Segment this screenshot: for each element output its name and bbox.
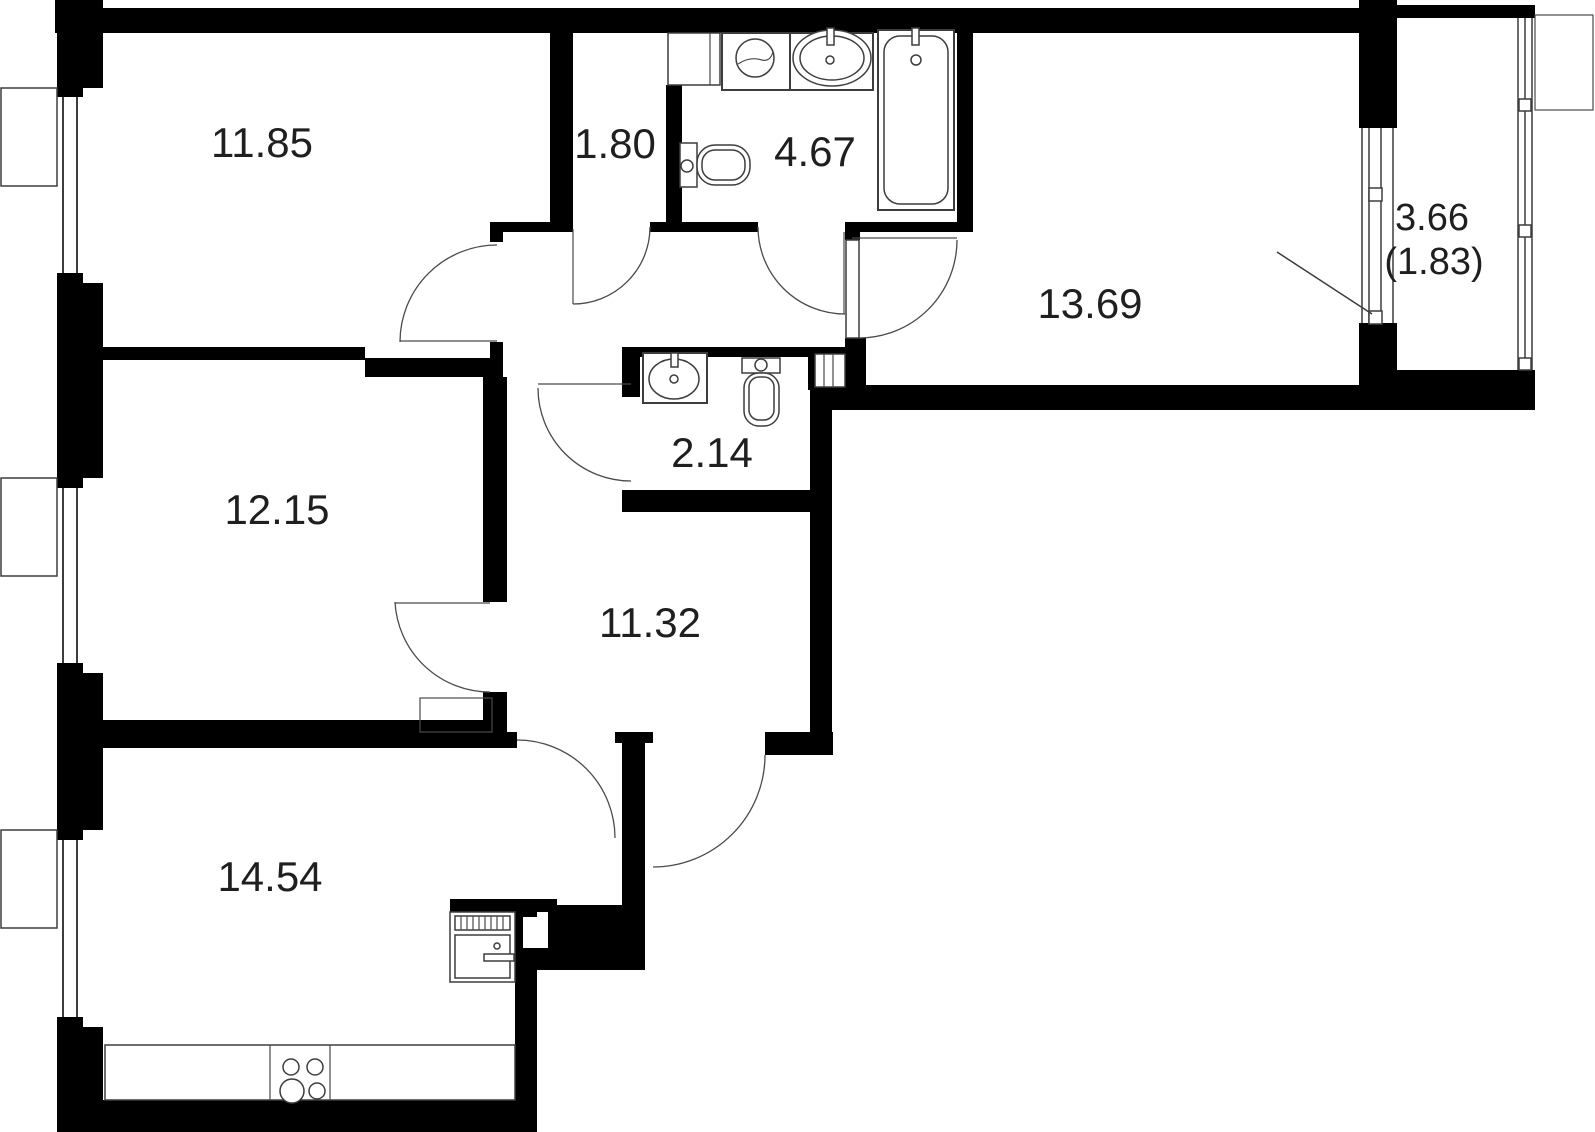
windows bbox=[1, 88, 77, 1017]
floor-plan-page: 11.85 1.80 4.67 13.69 3.66 (1.83) 12.15 … bbox=[0, 0, 1595, 1132]
wall bbox=[57, 8, 103, 88]
wall bbox=[57, 283, 103, 478]
wall bbox=[103, 732, 517, 748]
door-swing-icon bbox=[395, 602, 490, 692]
wall bbox=[450, 899, 557, 912]
wall bbox=[550, 33, 573, 223]
wall bbox=[845, 222, 971, 232]
wall bbox=[490, 342, 503, 378]
wall bbox=[57, 1100, 537, 1132]
wall bbox=[55, 8, 1362, 33]
washing-machine-icon bbox=[722, 33, 790, 90]
door-swing-icon bbox=[538, 384, 631, 481]
window-jamb bbox=[57, 478, 83, 488]
window-jamb bbox=[57, 663, 83, 673]
room-label-12-15: 12.15 bbox=[224, 486, 329, 533]
wall bbox=[615, 732, 653, 743]
wall bbox=[810, 385, 1359, 410]
room-label-2-14: 2.14 bbox=[671, 429, 753, 476]
door-swing-icon bbox=[758, 227, 845, 314]
wall bbox=[810, 387, 832, 735]
wall bbox=[365, 358, 497, 377]
window-icon bbox=[1, 478, 77, 663]
room-label-1-80: 1.80 bbox=[574, 120, 656, 167]
wall bbox=[537, 948, 645, 970]
kitchen-appliance-icon bbox=[450, 912, 515, 982]
wall bbox=[1359, 0, 1397, 128]
wall bbox=[622, 743, 645, 970]
balcony-glazing-icon bbox=[1277, 15, 1593, 370]
toilet-icon bbox=[680, 143, 750, 187]
window-jamb bbox=[57, 1017, 83, 1027]
room-label-balcony-area: 3.66 bbox=[1395, 197, 1469, 239]
balcony-ledge bbox=[1535, 15, 1593, 110]
toilet-icon bbox=[742, 358, 780, 426]
wall bbox=[1359, 323, 1397, 410]
wall bbox=[57, 1027, 103, 1105]
wall bbox=[492, 698, 503, 732]
storage-niche bbox=[523, 917, 548, 948]
vent-shaft-icon bbox=[815, 354, 845, 387]
door-swing-icon bbox=[846, 238, 957, 338]
wall bbox=[765, 732, 833, 755]
window-jamb bbox=[57, 273, 83, 283]
wall bbox=[57, 347, 365, 360]
window-icon bbox=[1, 830, 77, 1017]
wall bbox=[548, 905, 622, 948]
room-label-balcony-coef: (1.83) bbox=[1384, 241, 1483, 283]
bathroom-sink-icon bbox=[790, 28, 873, 90]
vent-shaft-icon bbox=[668, 33, 720, 85]
kitchen-fixtures bbox=[105, 912, 515, 1103]
door-swing-icon bbox=[420, 698, 615, 838]
door-swing-icon bbox=[400, 245, 497, 342]
room-label-13-69: 13.69 bbox=[1037, 280, 1142, 327]
window-jamb bbox=[57, 88, 83, 97]
entrance-door-swing-icon bbox=[653, 755, 765, 867]
room-label-4-67: 4.67 bbox=[774, 128, 856, 175]
window-jamb bbox=[57, 830, 83, 840]
room-label-11-85: 11.85 bbox=[211, 119, 313, 166]
door-swing-icon bbox=[573, 227, 650, 304]
room-label-11-32: 11.32 bbox=[599, 599, 701, 646]
wall bbox=[1397, 370, 1535, 410]
wc-sink-icon bbox=[643, 353, 707, 403]
wall bbox=[662, 222, 758, 232]
floor-plan-svg: 11.85 1.80 4.67 13.69 3.66 (1.83) 12.15 … bbox=[0, 0, 1595, 1132]
wall bbox=[490, 222, 573, 232]
bathroom-fixtures bbox=[668, 28, 954, 210]
doors bbox=[395, 227, 957, 867]
window-icon bbox=[1, 88, 77, 273]
wall bbox=[957, 33, 973, 232]
wall bbox=[490, 232, 503, 242]
room-label-14-54: 14.54 bbox=[217, 853, 322, 900]
wall bbox=[1396, 5, 1535, 18]
wall bbox=[622, 348, 640, 397]
wall bbox=[483, 377, 507, 602]
balcony-door-leaf bbox=[1277, 252, 1372, 314]
wall bbox=[622, 490, 812, 512]
wall bbox=[57, 673, 103, 830]
bathtub-icon bbox=[878, 28, 954, 210]
